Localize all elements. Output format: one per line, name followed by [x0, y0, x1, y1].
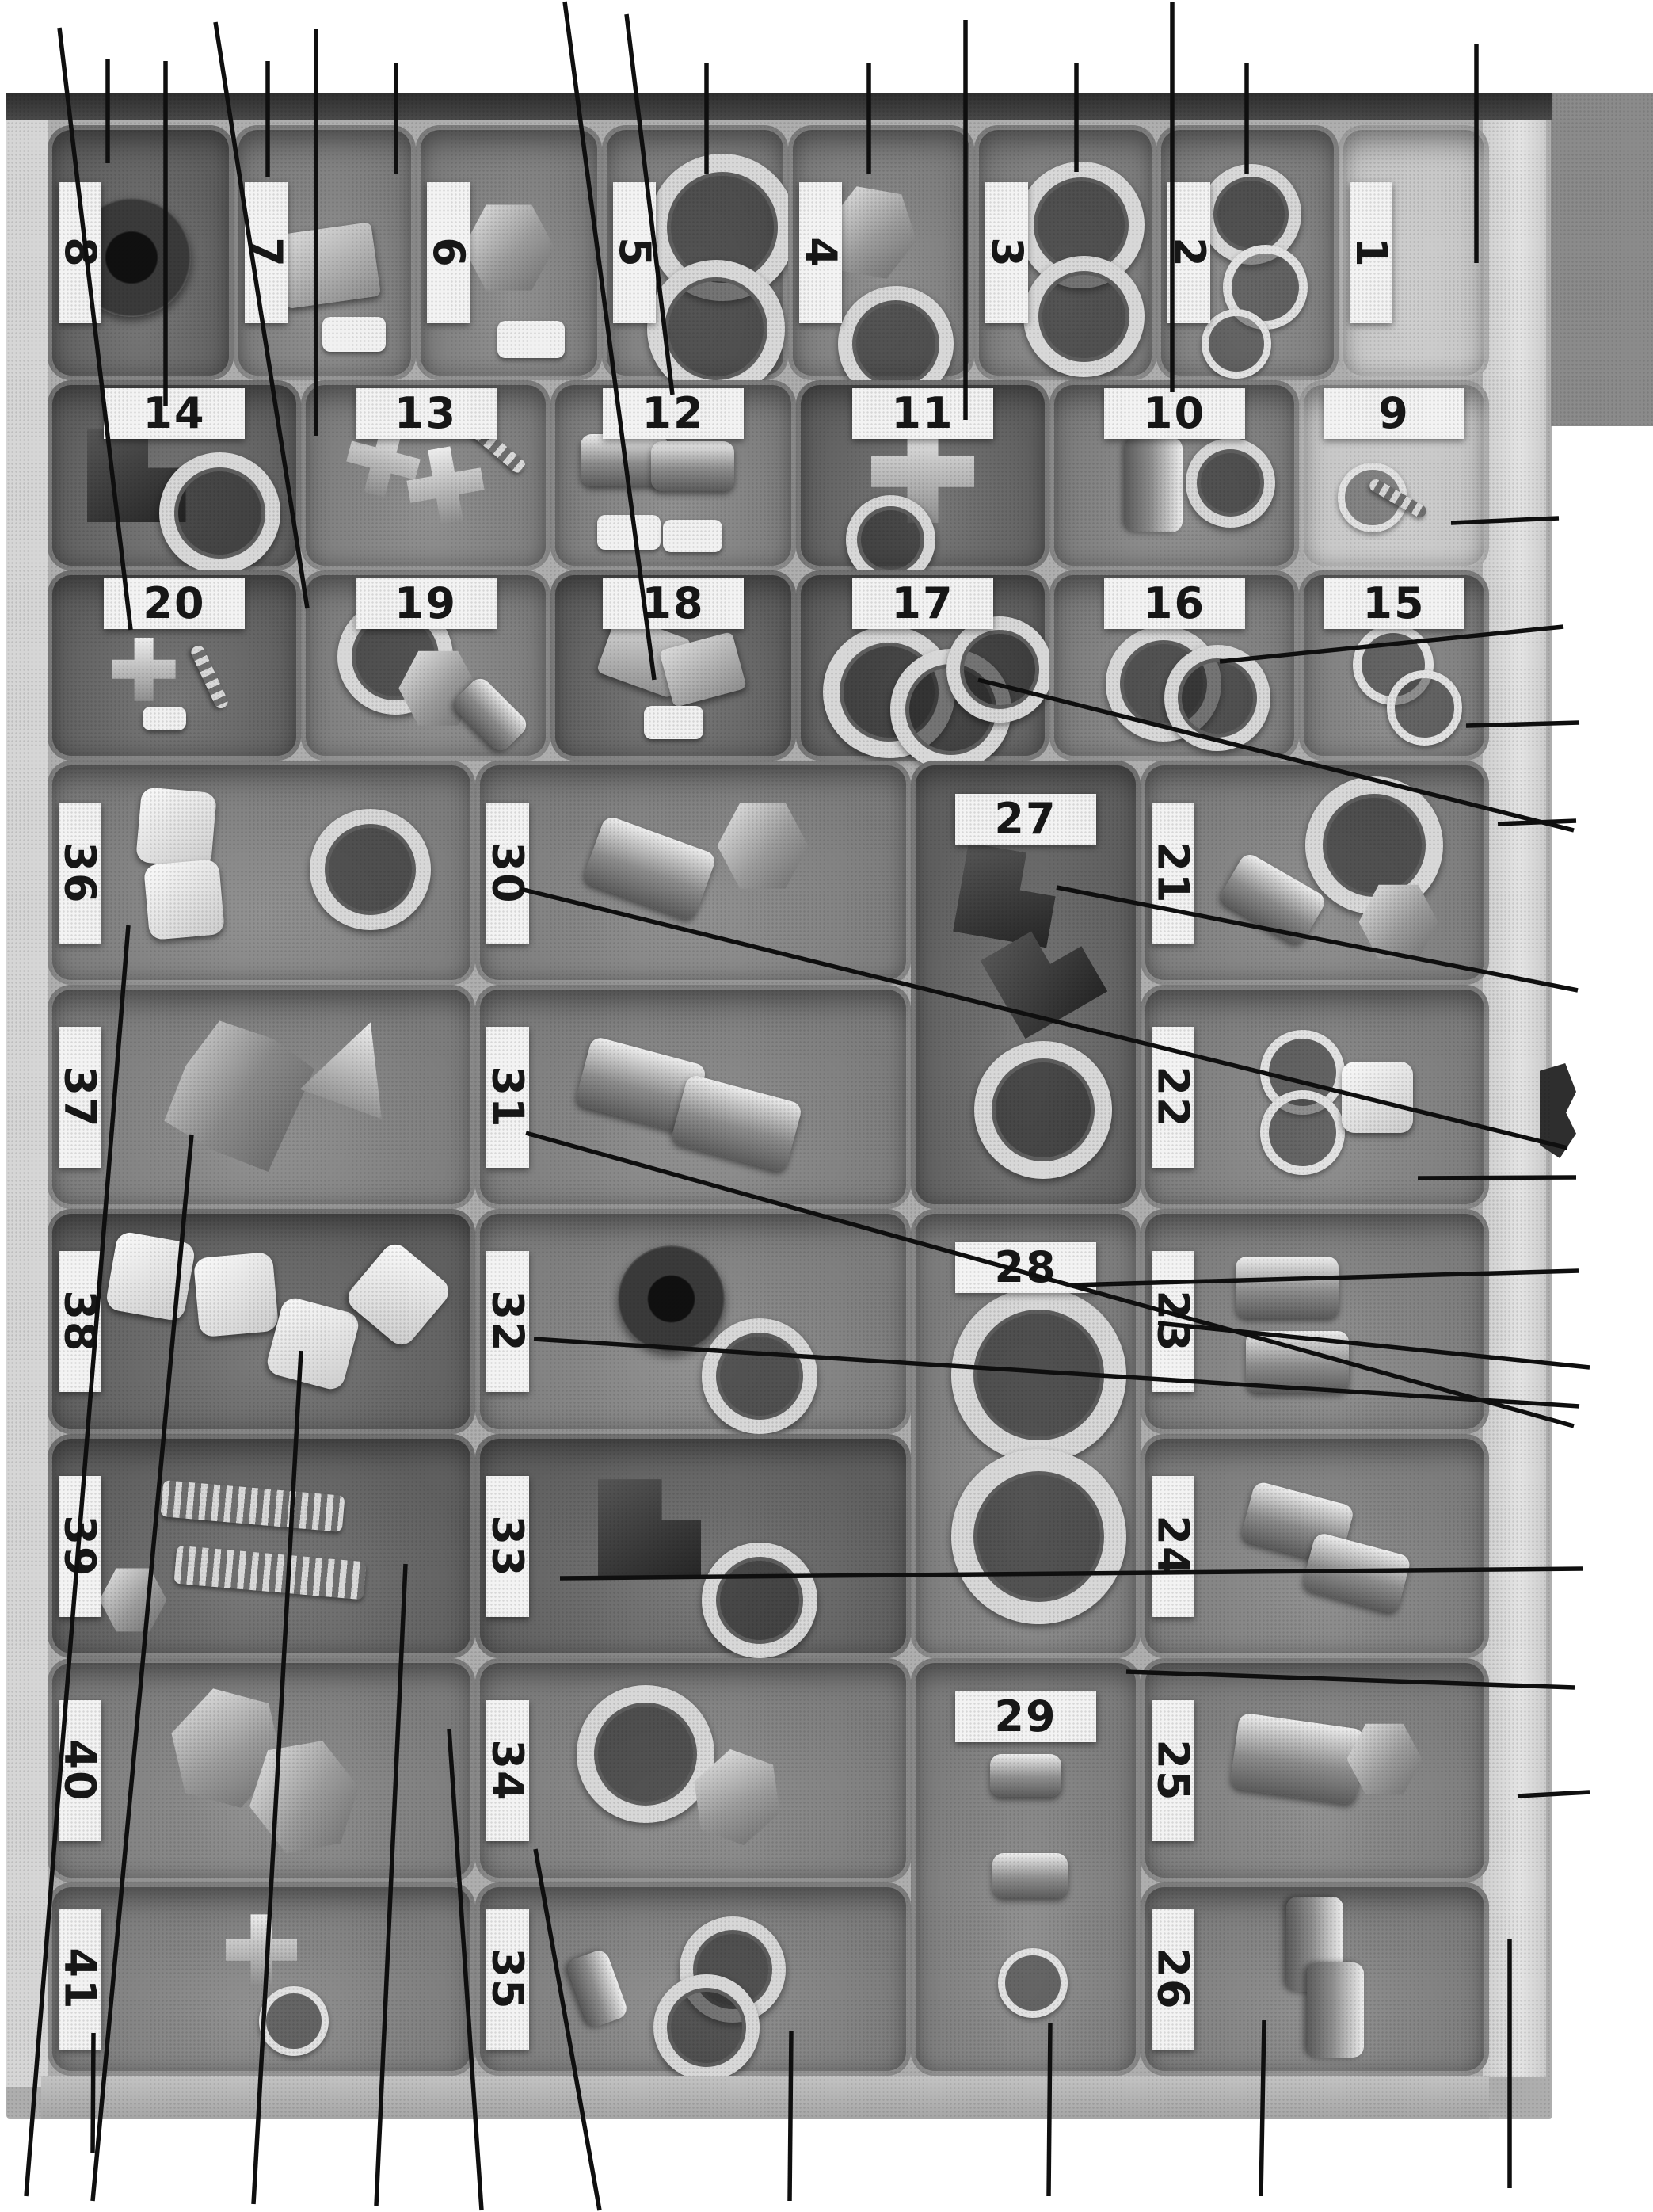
compartment-26: 26 [1141, 1882, 1489, 2076]
compartment-number: 22 [1152, 1066, 1194, 1128]
compartment-label: 17 [852, 578, 993, 629]
compartment-33: 33 [475, 1434, 911, 1658]
compartment-number: 6 [427, 237, 470, 269]
compartment-40: 40 [48, 1658, 475, 1882]
compartment-14: 14 [48, 380, 301, 570]
compartment-20: 20 [48, 570, 301, 761]
compartment-number: 21 [1152, 841, 1194, 904]
compartment-number: 9 [1378, 392, 1410, 435]
compartment-38: 38 [48, 1209, 475, 1434]
compartment-label: 26 [1152, 1909, 1194, 2050]
compartment-label: 16 [1104, 578, 1245, 629]
part-stud [173, 1546, 366, 1600]
compartment-13: 13 [301, 380, 550, 570]
compartment-21: 21 [1141, 761, 1489, 985]
part-cyl [1301, 1531, 1412, 1615]
part-tee [112, 638, 176, 701]
compartment-8: 8 [48, 125, 234, 380]
figure-canvas: 8765432114131211109201918171615363738394… [0, 0, 1653, 2212]
compartment-15: 15 [1299, 570, 1489, 761]
compartment-41: 41 [48, 1882, 475, 2076]
part-cyl [992, 1853, 1068, 1898]
part-cyl [990, 1754, 1061, 1797]
compartment-number: 1 [1350, 237, 1392, 269]
photo-top-band [6, 93, 1552, 120]
compartment-number: 5 [613, 237, 656, 269]
part-ring [702, 1318, 817, 1434]
part-hex [718, 800, 809, 891]
compartment-30: 30 [475, 761, 911, 985]
compartment-label: 33 [486, 1476, 529, 1617]
part-washer [998, 1948, 1068, 2018]
part-sqnut [105, 1230, 196, 1322]
compartment-number: 18 [642, 582, 704, 625]
part-elbow [598, 1479, 701, 1577]
compartment-label: 25 [1152, 1700, 1194, 1841]
part-block [276, 222, 381, 308]
part-valve [143, 1000, 337, 1194]
tray-latch [1540, 1063, 1576, 1158]
compartment-9: 9 [1299, 380, 1489, 570]
compartment-label: 8 [59, 182, 101, 323]
compartment-label: 2 [1167, 182, 1210, 323]
compartment-label: 7 [245, 182, 288, 323]
part-ring [1186, 438, 1275, 528]
compartment-number: 16 [1143, 582, 1205, 625]
part-cap [143, 707, 186, 730]
part-ring [951, 1287, 1126, 1463]
compartment-7: 7 [234, 125, 416, 380]
part-cyl [581, 814, 718, 922]
compartment-label: 22 [1152, 1027, 1194, 1168]
compartment-35: 35 [475, 1882, 911, 2076]
part-elbow [953, 842, 1062, 948]
compartment-number: 31 [486, 1066, 529, 1128]
compartment-label: 9 [1324, 388, 1464, 439]
part-cap [663, 520, 722, 552]
compartment-number: 3 [985, 237, 1028, 269]
compartment-number: 20 [143, 582, 205, 625]
compartment-1: 1 [1339, 125, 1489, 380]
part-ring [951, 1449, 1126, 1624]
compartment-3: 3 [974, 125, 1156, 380]
compartment-number: 25 [1152, 1739, 1194, 1802]
compartment-19: 19 [301, 570, 550, 761]
part-hex [100, 1566, 167, 1634]
compartment-number: 2 [1167, 237, 1210, 269]
compartment-25: 25 [1141, 1658, 1489, 1882]
compartment-label: 35 [486, 1909, 529, 2050]
compartment-12: 12 [550, 380, 796, 570]
compartment-number: 10 [1143, 392, 1205, 435]
compartment-number: 4 [799, 237, 842, 269]
part-tee [402, 441, 489, 528]
compartment-label: 21 [1152, 803, 1194, 944]
compartment-label: 37 [59, 1027, 101, 1168]
part-ring [1023, 256, 1145, 377]
part-ring [159, 452, 280, 574]
part-ring [577, 1685, 714, 1823]
part-sqnut [1342, 1062, 1413, 1133]
compartment-label: 34 [486, 1700, 529, 1841]
compartment-label: 14 [104, 388, 245, 439]
part-cap [597, 515, 661, 550]
compartment-label: 23 [1152, 1251, 1194, 1392]
part-sqnut [135, 787, 217, 868]
compartment-number: 11 [891, 392, 954, 435]
compartment-label: 19 [356, 578, 497, 629]
compartment-label: 27 [955, 794, 1096, 845]
part-cyl [1125, 437, 1183, 532]
compartment-label: 11 [852, 388, 993, 439]
compartment-label: 29 [955, 1691, 1096, 1742]
tray-front-wall [41, 2076, 1489, 2119]
part-tee [226, 1914, 297, 1985]
compartment-label: 3 [985, 182, 1028, 323]
part-ring [1164, 645, 1270, 751]
compartment-label: 32 [486, 1251, 529, 1392]
part-ring [702, 1543, 817, 1658]
compartment-number: 23 [1152, 1290, 1194, 1352]
compartment-number: 7 [245, 237, 288, 269]
part-socket [618, 1245, 725, 1352]
compartment-2: 2 [1156, 125, 1339, 380]
compartment-label: 36 [59, 803, 101, 944]
compartment-4: 4 [788, 125, 974, 380]
part-cap [322, 317, 386, 352]
compartment-number: 26 [1152, 1947, 1194, 2010]
compartment-label: 5 [613, 182, 656, 323]
compartment-number: 36 [59, 841, 101, 904]
compartment-label: 13 [356, 388, 497, 439]
compartment-37: 37 [48, 985, 475, 1209]
compartment-label: 6 [427, 182, 470, 323]
compartment-number: 35 [486, 1947, 529, 2010]
part-cap [497, 321, 565, 358]
compartment-number: 37 [59, 1066, 101, 1128]
compartment-number: 24 [1152, 1515, 1194, 1577]
compartment-label: 39 [59, 1476, 101, 1617]
compartment-34: 34 [475, 1658, 911, 1882]
compartment-24: 24 [1141, 1434, 1489, 1658]
compartment-label: 31 [486, 1027, 529, 1168]
compartment-number: 39 [59, 1515, 101, 1577]
compartment-number: 32 [486, 1290, 529, 1352]
part-cyl [1246, 1331, 1349, 1393]
compartment-label: 41 [59, 1909, 101, 2050]
compartment-number: 41 [59, 1947, 101, 2010]
part-washer [1387, 670, 1462, 746]
compartment-number: 40 [59, 1739, 101, 1802]
compartment-number: 17 [891, 582, 954, 625]
compartment-29: 29 [911, 1658, 1141, 2076]
compartment-31: 31 [475, 985, 911, 1209]
part-hex [463, 202, 554, 293]
compartment-label: 15 [1324, 578, 1464, 629]
compartment-number: 29 [994, 1695, 1057, 1738]
part-stud [189, 643, 230, 710]
compartment-number: 28 [994, 1246, 1057, 1289]
compartment-number: 30 [486, 841, 529, 904]
compartment-number: 34 [486, 1739, 529, 1802]
compartment-label: 10 [1104, 388, 1245, 439]
compartment-label: 18 [603, 578, 744, 629]
compartment-label: 30 [486, 803, 529, 944]
compartment-number: 19 [394, 582, 457, 625]
part-washer [1260, 1090, 1345, 1175]
compartment-number: 27 [994, 798, 1057, 841]
part-washer [1202, 309, 1271, 379]
compartment-36: 36 [48, 761, 475, 985]
part-cyl [1307, 1962, 1364, 2058]
compartment-18: 18 [550, 570, 796, 761]
part-ring [647, 260, 785, 398]
compartment-label: 20 [104, 578, 245, 629]
compartment-16: 16 [1049, 570, 1299, 761]
compartment-23: 23 [1141, 1209, 1489, 1434]
part-cone [299, 1008, 411, 1119]
part-ring [946, 616, 1053, 723]
part-cyl [1229, 1713, 1365, 1806]
compartment-11: 11 [796, 380, 1049, 570]
part-cap [644, 706, 703, 738]
part-sqnut [192, 1252, 278, 1337]
compartment-number: 8 [59, 237, 101, 269]
compartment-number: 38 [59, 1290, 101, 1352]
compartment-28: 28 [911, 1209, 1141, 1658]
compartment-39: 39 [48, 1434, 475, 1658]
part-cyl [651, 441, 734, 491]
compartment-label: 4 [799, 182, 842, 323]
compartment-17: 17 [796, 570, 1049, 761]
compartment-22: 22 [1141, 985, 1489, 1209]
compartment-number: 14 [143, 392, 205, 435]
photo: 8765432114131211109201918171615363738394… [6, 93, 1552, 2119]
part-cyl [565, 1948, 630, 2030]
compartment-label: 24 [1152, 1476, 1194, 1617]
compartment-number: 13 [394, 392, 457, 435]
compartment-label: 40 [59, 1700, 101, 1841]
tray-left-edge [6, 117, 48, 2087]
compartment-number: 33 [486, 1515, 529, 1577]
part-washer [259, 1986, 329, 2056]
compartment-label: 1 [1350, 182, 1392, 323]
compartment-32: 32 [475, 1209, 911, 1434]
compartment-10: 10 [1049, 380, 1299, 570]
part-cyl [1236, 1257, 1339, 1318]
compartment-5: 5 [602, 125, 788, 380]
compartment-label: 28 [955, 1242, 1096, 1293]
part-cyl [670, 1074, 803, 1174]
part-ring [974, 1041, 1112, 1179]
compartment-27: 27 [911, 761, 1141, 1209]
part-sqnut [265, 1295, 361, 1392]
compartment-6: 6 [416, 125, 602, 380]
compartment-label: 12 [603, 388, 744, 439]
part-sqnut [143, 859, 225, 940]
photo-corner-patch [1551, 93, 1653, 426]
compartment-number: 15 [1362, 582, 1425, 625]
part-stud [161, 1480, 345, 1532]
part-ring [653, 1974, 760, 2080]
compartment-label: 38 [59, 1251, 101, 1392]
tray-right-edge [1483, 120, 1546, 2077]
compartment-number: 12 [642, 392, 704, 435]
part-sqnut [342, 1238, 454, 1350]
part-ring [310, 809, 431, 930]
